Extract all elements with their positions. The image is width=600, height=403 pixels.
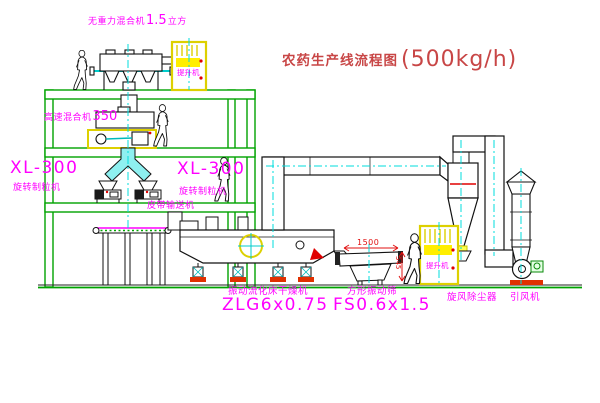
belt-conveyor: [93, 228, 171, 286]
title-capacity: (500kg/h): [401, 49, 517, 71]
label-hoist-lower: 提升机: [426, 262, 449, 270]
diagram-title: 农药生产线流程图 (500kg/h): [282, 49, 517, 71]
person-figure: [74, 50, 88, 89]
label-gravity-mixer: 无重力混合机 1.5 立方: [88, 14, 187, 27]
label-cyclone: 旋风除尘器: [447, 293, 497, 303]
induced-draft-fan: [510, 260, 543, 286]
label-high-speed-mixer: 高速混合机 350: [44, 110, 117, 123]
label-hoist-upper: 提升机: [177, 69, 200, 77]
title-text: 农药生产线流程图: [282, 52, 398, 71]
person-figure: [404, 234, 422, 284]
label-screen-model: FS0.6x1.5: [333, 297, 431, 314]
label-dryer-model: ZLG6x0.75: [222, 297, 329, 314]
dimension-545: 545: [394, 256, 401, 269]
label-granulator-mid-name: 旋转制粒机: [179, 188, 227, 197]
gravity-free-mixer: [90, 50, 174, 112]
label-granulator-left-model: XL-300: [10, 160, 78, 177]
main-exhaust-duct: [262, 157, 448, 230]
label-granulator-mid-model: XL-300: [177, 161, 245, 178]
ground-line: [38, 285, 582, 288]
person-figure: [154, 105, 169, 146]
label-belt-conveyor: 皮带输送机: [147, 202, 195, 211]
label-fan: 引风机: [510, 293, 540, 303]
dimension-1500: 1500: [357, 239, 379, 247]
diagram-canvas: 农药生产线流程图 (500kg/h) 无重力混合机 1.5 立方 高速混合机 3…: [0, 0, 600, 403]
label-granulator-left-name: 旋转制粒机: [13, 184, 61, 193]
granulator-left-unit: [95, 190, 121, 203]
